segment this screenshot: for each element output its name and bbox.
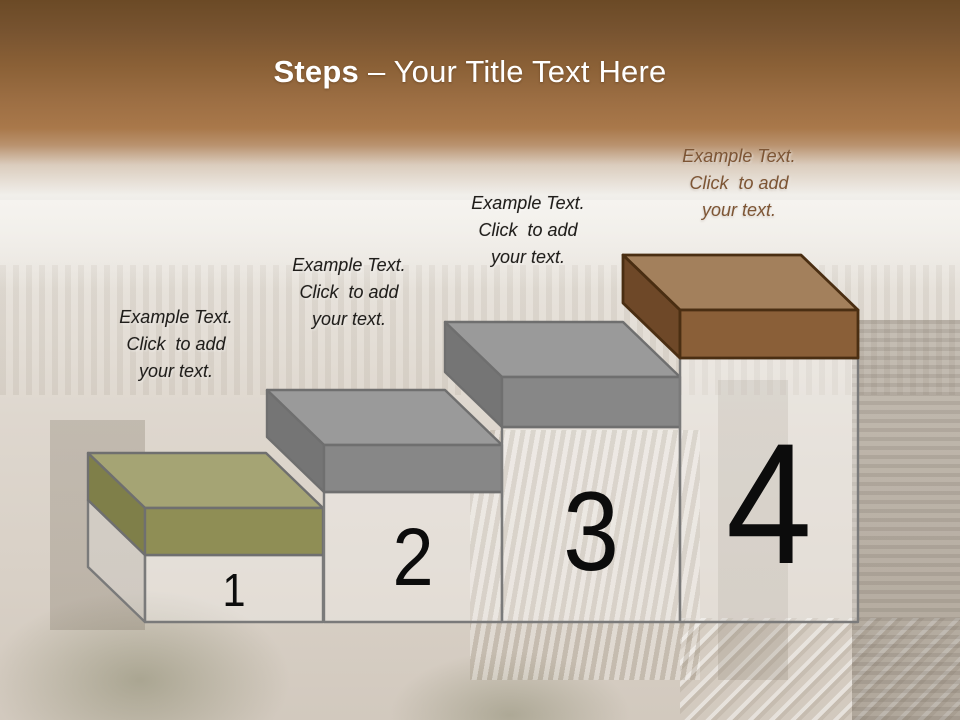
step-1-number[interactable]: 1	[154, 557, 314, 622]
step-2-cap-front-face	[324, 445, 502, 492]
step-3-caption[interactable]: Example Text. Click to add your text.	[418, 190, 638, 271]
step-2-number[interactable]: 2	[333, 494, 493, 622]
step-4-number[interactable]: 4	[689, 360, 849, 622]
step-4-caption[interactable]: Example Text. Click to add your text.	[629, 143, 849, 224]
slide: Steps– Your Title Text Here	[0, 0, 960, 720]
step-4-cap-front-face	[680, 310, 858, 358]
step-1-cap-front-face	[145, 508, 323, 555]
step-3-number[interactable]: 3	[511, 429, 671, 622]
step-3-cap-front-face	[502, 377, 680, 427]
